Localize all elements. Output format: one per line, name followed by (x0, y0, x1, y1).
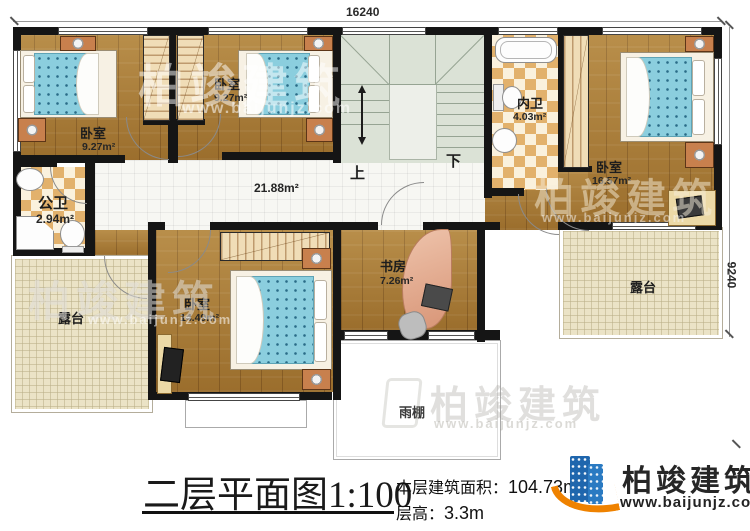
nightstand (685, 36, 714, 52)
wardrobe-bedroom1 (143, 35, 170, 121)
sink-public (16, 168, 44, 191)
bedroom3-label: 卧室 (596, 161, 622, 175)
terrace-passage-floor (95, 230, 148, 256)
stair-direction-arrow (361, 92, 363, 138)
bedroom2-label: 卧室 (214, 78, 240, 92)
bedroom4-area: 14.49m² (180, 313, 219, 324)
wardrobe-bedroom2 (177, 35, 204, 121)
ensuite-bath-area: 4.03m² (513, 112, 546, 123)
nightstand (306, 118, 333, 142)
floor-height-line: 层高：3.3m (396, 500, 484, 524)
plan-title-text: 二层平面图 (143, 475, 328, 516)
public-bath-area: 2.94m² (36, 213, 74, 225)
stairs-up-label: 上 (350, 166, 365, 183)
tv-bedroom4 (160, 347, 184, 383)
watermark-logo-glyph (381, 378, 422, 428)
dim-height: 9240 (724, 262, 738, 289)
nightstand (302, 369, 331, 390)
study-area: 7.26m² (380, 276, 413, 287)
bedroom1-label: 卧室 (80, 127, 106, 141)
porch-outline (185, 400, 307, 428)
nightstand (60, 36, 96, 51)
nightstand (302, 248, 331, 269)
stair-landing (389, 84, 437, 160)
terrace-left-label: 露台 (58, 312, 84, 326)
brand-logo-icon (552, 452, 616, 520)
dim-line-right (729, 27, 730, 337)
nightstand (304, 36, 333, 51)
sink-ensuite (492, 128, 517, 153)
floor-plan-canvas: 上 下 (0, 0, 750, 531)
brand-website: www.baijunjz.com (620, 494, 750, 511)
nightstand (18, 118, 46, 142)
public-bath-label: 公卫 (38, 196, 68, 213)
nightstand (685, 142, 714, 168)
stairs-down-label: 下 (446, 154, 461, 171)
hallway-area: 21.88m² (254, 182, 299, 194)
window-stairs-top (342, 27, 426, 35)
ensuite-bath-label: 内卫 (517, 97, 543, 111)
bedroom4-label: 卧室 (184, 298, 210, 312)
bedroom1-area: 9.27m² (82, 142, 115, 153)
window-bedroom4-bottom (188, 393, 300, 401)
study-label: 书房 (380, 260, 406, 274)
dim-width: 16240 (346, 5, 379, 19)
window-study-bottom-1 (344, 331, 388, 340)
terrace-right-label: 露台 (630, 281, 656, 295)
window-bedroom3-right (714, 58, 722, 145)
window-bedroom2-top (208, 27, 308, 35)
plan-title: 二层平面图1:100 (143, 464, 412, 518)
bedroom3-area: 16.57m² (592, 176, 631, 187)
hallway-floor (95, 160, 485, 230)
title-underline (142, 511, 394, 514)
window-study-bottom-2 (428, 331, 475, 340)
window-bedroom1-top (58, 27, 148, 35)
window-bath-top (498, 27, 558, 35)
window-bedroom3-top (602, 27, 702, 35)
logo-swoosh (551, 474, 620, 523)
bedroom2-area: 9.27m² (214, 93, 247, 104)
wardrobe-bedroom3 (563, 35, 589, 168)
dim-line-top (13, 21, 722, 22)
